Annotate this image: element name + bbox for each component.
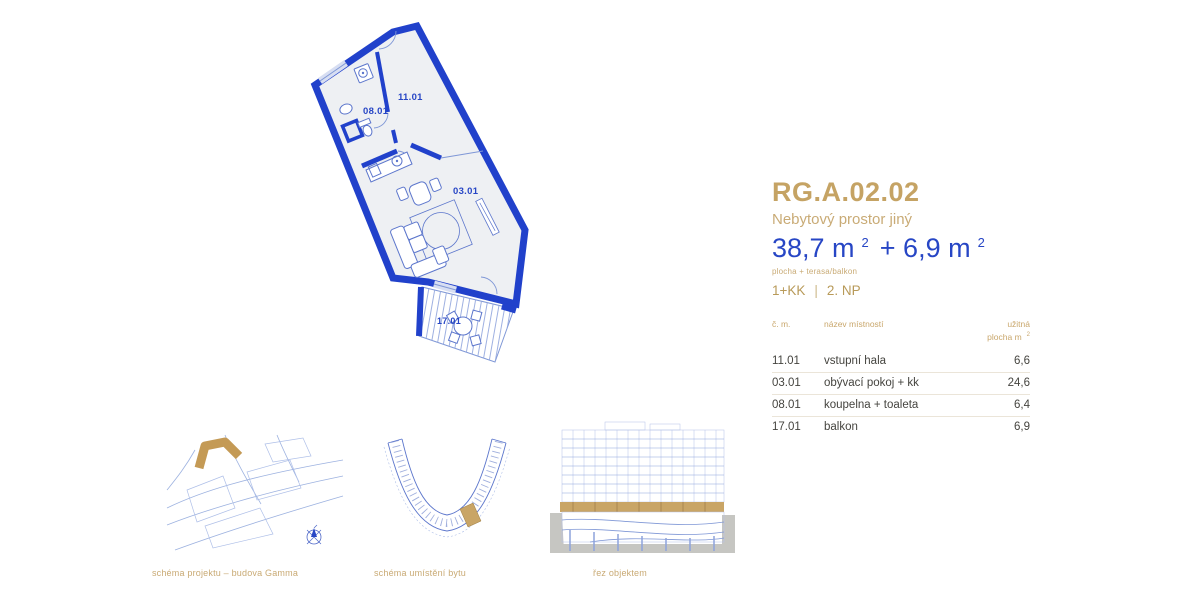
- row-number: 17.01: [772, 421, 824, 433]
- room-label-hall: 11.01: [398, 92, 423, 103]
- row-area: 6,9: [956, 421, 1030, 433]
- caption-section: řez objektem: [520, 568, 720, 578]
- site-streets: [167, 435, 343, 550]
- room-label-bathroom: 08.01: [363, 106, 389, 117]
- layout-separator: |: [814, 283, 818, 298]
- header-area: užitná plocha m2: [956, 319, 1030, 344]
- building-horseshoe: [384, 439, 510, 537]
- floor-value: 2. NP: [827, 283, 861, 298]
- unit-code: RG.A.02.02: [772, 179, 1030, 206]
- unit-type: Nebytový prostor jiný: [772, 211, 1030, 228]
- unit-location-figure: [372, 427, 522, 547]
- area-note: plocha + terasa/balkon: [772, 267, 1030, 276]
- row-number: 08.01: [772, 399, 824, 411]
- unit-info-panel: RG.A.02.02 Nebytový prostor jiný 38,7 m2…: [772, 179, 1030, 438]
- caption-site-plan: schéma projektu – budova Gamma: [125, 568, 325, 578]
- room-label-balcony: 17.01: [437, 316, 461, 326]
- table-row: 11.01 vstupní hala 6,6: [772, 351, 1030, 373]
- row-area: 6,4: [956, 399, 1030, 411]
- row-area: 24,6: [956, 377, 1030, 389]
- table-row: 03.01 obývací pokoj + kk 24,6: [772, 373, 1030, 395]
- highlighted-building-gamma: [199, 442, 239, 468]
- row-number: 03.01: [772, 377, 824, 389]
- area-sup: 2: [862, 235, 869, 250]
- site-plan-figure: [165, 430, 345, 555]
- header-number: č. m.: [772, 319, 824, 344]
- row-area: 6,6: [956, 355, 1030, 367]
- row-name: vstupní hala: [824, 355, 956, 367]
- header-name: název místností: [824, 319, 956, 344]
- row-name: balkon: [824, 421, 956, 433]
- row-name: obývací pokoj + kk: [824, 377, 956, 389]
- table-row: 17.01 balkon 6,9: [772, 417, 1030, 438]
- area-sup2: 2: [978, 235, 985, 250]
- caption-unit-location: schéma umístění bytu: [320, 568, 520, 578]
- area-main: 38,7 m: [772, 233, 855, 263]
- layout-floor-line: 1+KK|2. NP: [772, 283, 1030, 298]
- room-label-living: 03.01: [453, 186, 479, 197]
- table-row: 08.01 koupelna + toaleta 6,4: [772, 395, 1030, 417]
- layout-value: 1+KK: [772, 283, 805, 298]
- floorplan-drawing: 11.01 08.01 03.01 17.01: [300, 0, 560, 390]
- row-name: koupelna + toaleta: [824, 399, 956, 411]
- facade-grid: [562, 422, 724, 502]
- row-number: 11.01: [772, 355, 824, 367]
- unit-area: 38,7 m2+ 6,9 m2: [772, 235, 1030, 262]
- rooms-table: č. m. název místností užitná plocha m2 1…: [772, 319, 1030, 438]
- unit-detail-sheet: 11.01 08.01 03.01 17.01 RG.A.02.02 Nebyt…: [0, 0, 1200, 600]
- rooms-table-header: č. m. název místností užitná plocha m2: [772, 319, 1030, 351]
- compass-icon: [307, 525, 321, 544]
- building-section-figure: [550, 420, 735, 558]
- area-extra: + 6,9 m: [880, 233, 971, 263]
- highlighted-floor: [560, 502, 724, 512]
